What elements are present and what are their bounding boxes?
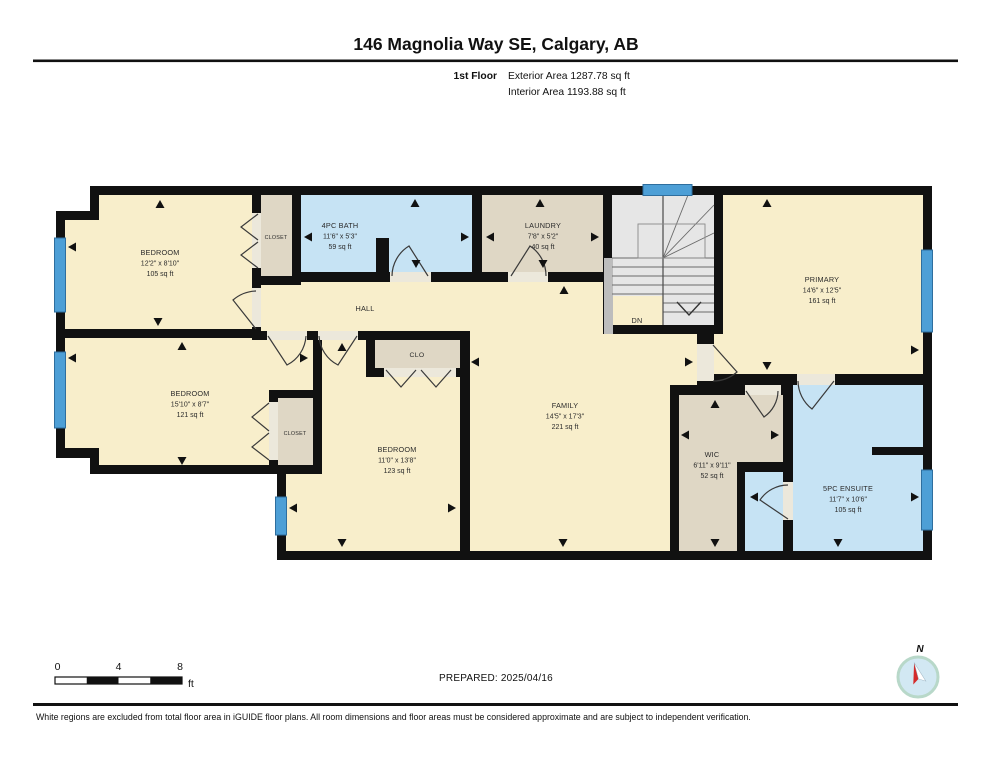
- room-dims: 14'6" x 12'5": [803, 288, 842, 295]
- door-gap: [384, 368, 456, 377]
- room-dims: 14'5" x 17'3": [546, 414, 585, 421]
- room-dims: 11'6" x 5'3": [323, 234, 357, 241]
- floorplan-page: 146 Magnolia Way SE, Calgary, AB 1st Flo…: [0, 0, 993, 768]
- room-name: BEDROOM: [170, 389, 209, 398]
- stair-halfwall: [604, 258, 613, 334]
- room-area: 59 sq ft: [329, 244, 352, 251]
- door-gap: [390, 272, 431, 282]
- label-closet2: CLOSET: [284, 431, 307, 437]
- room-name: FAMILY: [552, 401, 579, 410]
- room-dims: 15'10" x 8'7": [171, 402, 210, 409]
- room-dims: 11'0" x 13'8": [378, 458, 416, 465]
- room-name: BEDROOM: [377, 445, 416, 454]
- window: [55, 352, 66, 428]
- room-dims: 6'11" x 9'11": [693, 463, 731, 470]
- door-gap: [269, 402, 278, 460]
- footer: 0 4 8 ft PREPARED: 2025/04/16 N White re…: [33, 644, 958, 722]
- door-gap: [745, 385, 781, 395]
- room-name: PRIMARY: [805, 275, 840, 284]
- room-dims: 11'7" x 10'6": [829, 497, 867, 504]
- door-gap: [318, 331, 358, 340]
- scale-bar-segment: [150, 677, 182, 684]
- label-closet1: CLOSET: [265, 235, 288, 241]
- floor-label: 1st Floor: [454, 71, 497, 82]
- disclaimer-text: White regions are excluded from total fl…: [36, 712, 751, 722]
- room-area: 121 sq ft: [177, 412, 204, 419]
- north-label: N: [916, 644, 924, 655]
- wall: [269, 390, 313, 398]
- room-area: 161 sq ft: [809, 298, 836, 305]
- room-area: 105 sq ft: [147, 271, 174, 278]
- wall: [313, 331, 322, 474]
- window: [643, 185, 692, 196]
- scale-bar-segment: [87, 677, 119, 684]
- wall: [286, 465, 322, 474]
- compass-icon: N: [898, 644, 938, 697]
- door-gap: [252, 288, 261, 327]
- page-title: 146 Magnolia Way SE, Calgary, AB: [353, 34, 638, 54]
- door-gap: [697, 344, 714, 381]
- header-divider: [33, 60, 958, 63]
- wall: [376, 238, 389, 282]
- door-gap: [252, 213, 261, 268]
- prepared-date: PREPARED: 2025/04/16: [439, 673, 553, 684]
- wall: [292, 272, 612, 282]
- room-area: 221 sq ft: [552, 424, 579, 431]
- wall: [472, 195, 482, 282]
- label-stairs-dn: DN: [632, 316, 643, 325]
- room-name: BEDROOM: [140, 248, 179, 257]
- ensuite-floor: [793, 385, 923, 551]
- window: [55, 238, 66, 312]
- door-gap: [508, 272, 548, 282]
- door-gap: [783, 482, 793, 520]
- wall: [460, 331, 470, 551]
- room-area: 123 sq ft: [384, 468, 411, 475]
- room-dims: 7'8" x 5'2": [528, 234, 559, 241]
- window: [922, 470, 933, 530]
- wall: [737, 462, 793, 472]
- header: 146 Magnolia Way SE, Calgary, AB 1st Flo…: [33, 34, 958, 98]
- wall: [737, 462, 745, 551]
- door-gap: [797, 374, 835, 385]
- interior-area: Interior Area 1193.88 sq ft: [508, 87, 626, 98]
- scale-bar: 0 4 8 ft: [55, 661, 194, 690]
- door-gap: [267, 331, 307, 340]
- room-area: 105 sq ft: [835, 507, 862, 514]
- scale-unit: ft: [188, 678, 194, 690]
- room-area: 40 sq ft: [532, 244, 555, 251]
- room-name: WIC: [705, 450, 720, 459]
- label-clo: CLO: [410, 352, 425, 359]
- room-dims: 12'2" x 8'10": [141, 261, 180, 268]
- wall: [56, 329, 261, 338]
- label-hall: HALL: [355, 304, 374, 313]
- scale-tick-8: 8: [177, 661, 183, 673]
- room-area: 52 sq ft: [701, 473, 724, 480]
- wall: [714, 195, 723, 334]
- room-name: 4PC BATH: [322, 221, 359, 230]
- scale-tick-4: 4: [116, 661, 122, 673]
- wall: [292, 195, 301, 285]
- wall: [872, 447, 923, 455]
- floor-plan: BEDROOM 12'2" x 8'10" 105 sq ft CLOSET 4…: [55, 185, 933, 561]
- wall: [670, 385, 679, 551]
- footer-divider: [33, 703, 958, 706]
- room-name: 5PC ENSUITE: [823, 484, 873, 493]
- exterior-area: Exterior Area 1287.78 sq ft: [508, 71, 630, 82]
- scale-tick-0: 0: [55, 661, 61, 673]
- window: [276, 497, 287, 535]
- window: [922, 250, 933, 332]
- room-name: LAUNDRY: [525, 221, 561, 230]
